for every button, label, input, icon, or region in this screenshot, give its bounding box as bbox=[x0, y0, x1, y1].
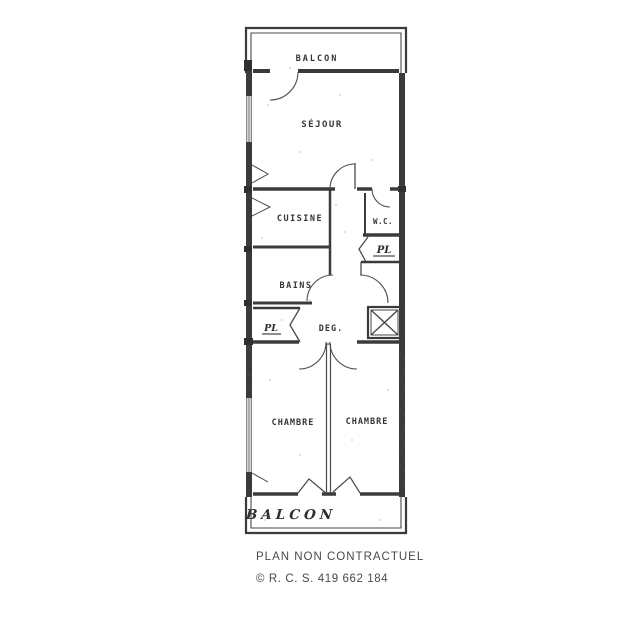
balcony-top-inner-wall bbox=[251, 33, 401, 73]
floor-plan-drawing: BALCON bbox=[0, 0, 640, 640]
room-label-sejour: SÉJOUR bbox=[301, 118, 343, 130]
room-label-bains: BAINS bbox=[279, 281, 312, 291]
shaft-cross bbox=[371, 310, 398, 335]
room-label-chambre-right: CHAMBRE bbox=[346, 417, 389, 427]
cuisine-room: CUISINE bbox=[253, 189, 330, 247]
pl-left-door bbox=[290, 308, 300, 342]
balcony-door-arc bbox=[270, 72, 298, 100]
chambres: CHAMBRE CHAMBRE bbox=[253, 342, 399, 494]
room-label-wc: W.C. bbox=[373, 217, 393, 226]
room-label-balcon-bottom: BALCON bbox=[244, 507, 336, 523]
room-label-pl-right: PL bbox=[376, 245, 392, 256]
balcony-door-symbols bbox=[298, 477, 360, 494]
shaft-symbol bbox=[368, 307, 401, 338]
entry-hall bbox=[360, 262, 388, 303]
bains-room: BAINS bbox=[253, 247, 333, 303]
entry-door-arc bbox=[360, 275, 388, 303]
pl-right-door bbox=[359, 237, 368, 262]
room-label-balcon-top: BALCON bbox=[296, 54, 339, 64]
balcony-top-outer-wall bbox=[246, 28, 406, 73]
rcs-number: © R. C. S. 419 662 184 bbox=[256, 573, 388, 585]
wc-room: W.C. bbox=[363, 189, 402, 235]
degagement: PL DEG. bbox=[253, 308, 343, 342]
room-label-deg: DEG. bbox=[319, 324, 343, 334]
scan-speckles bbox=[261, 67, 389, 521]
sejour-door-arc bbox=[330, 164, 355, 189]
balcony-top: BALCON bbox=[246, 28, 406, 100]
plan-disclaimer: PLAN NON CONTRACTUEL bbox=[256, 551, 424, 563]
sejour-room: SÉJOUR bbox=[253, 118, 399, 189]
pl-right-closet: PL bbox=[359, 237, 402, 262]
sejour-window bbox=[247, 96, 251, 142]
wc-door-arc bbox=[372, 189, 390, 207]
chambres-divider-wall bbox=[327, 344, 331, 494]
balcony-bottom: BALCON bbox=[244, 497, 406, 533]
room-label-pl-left: PL bbox=[263, 323, 278, 334]
chambre-window bbox=[247, 398, 251, 472]
room-label-chambre-left: CHAMBRE bbox=[272, 418, 315, 428]
chambre-left-door-arc bbox=[299, 342, 326, 369]
room-label-cuisine: CUISINE bbox=[277, 214, 323, 224]
chambre-right-door-arc bbox=[330, 342, 357, 369]
floor-plan-page: BALCON bbox=[0, 0, 640, 640]
